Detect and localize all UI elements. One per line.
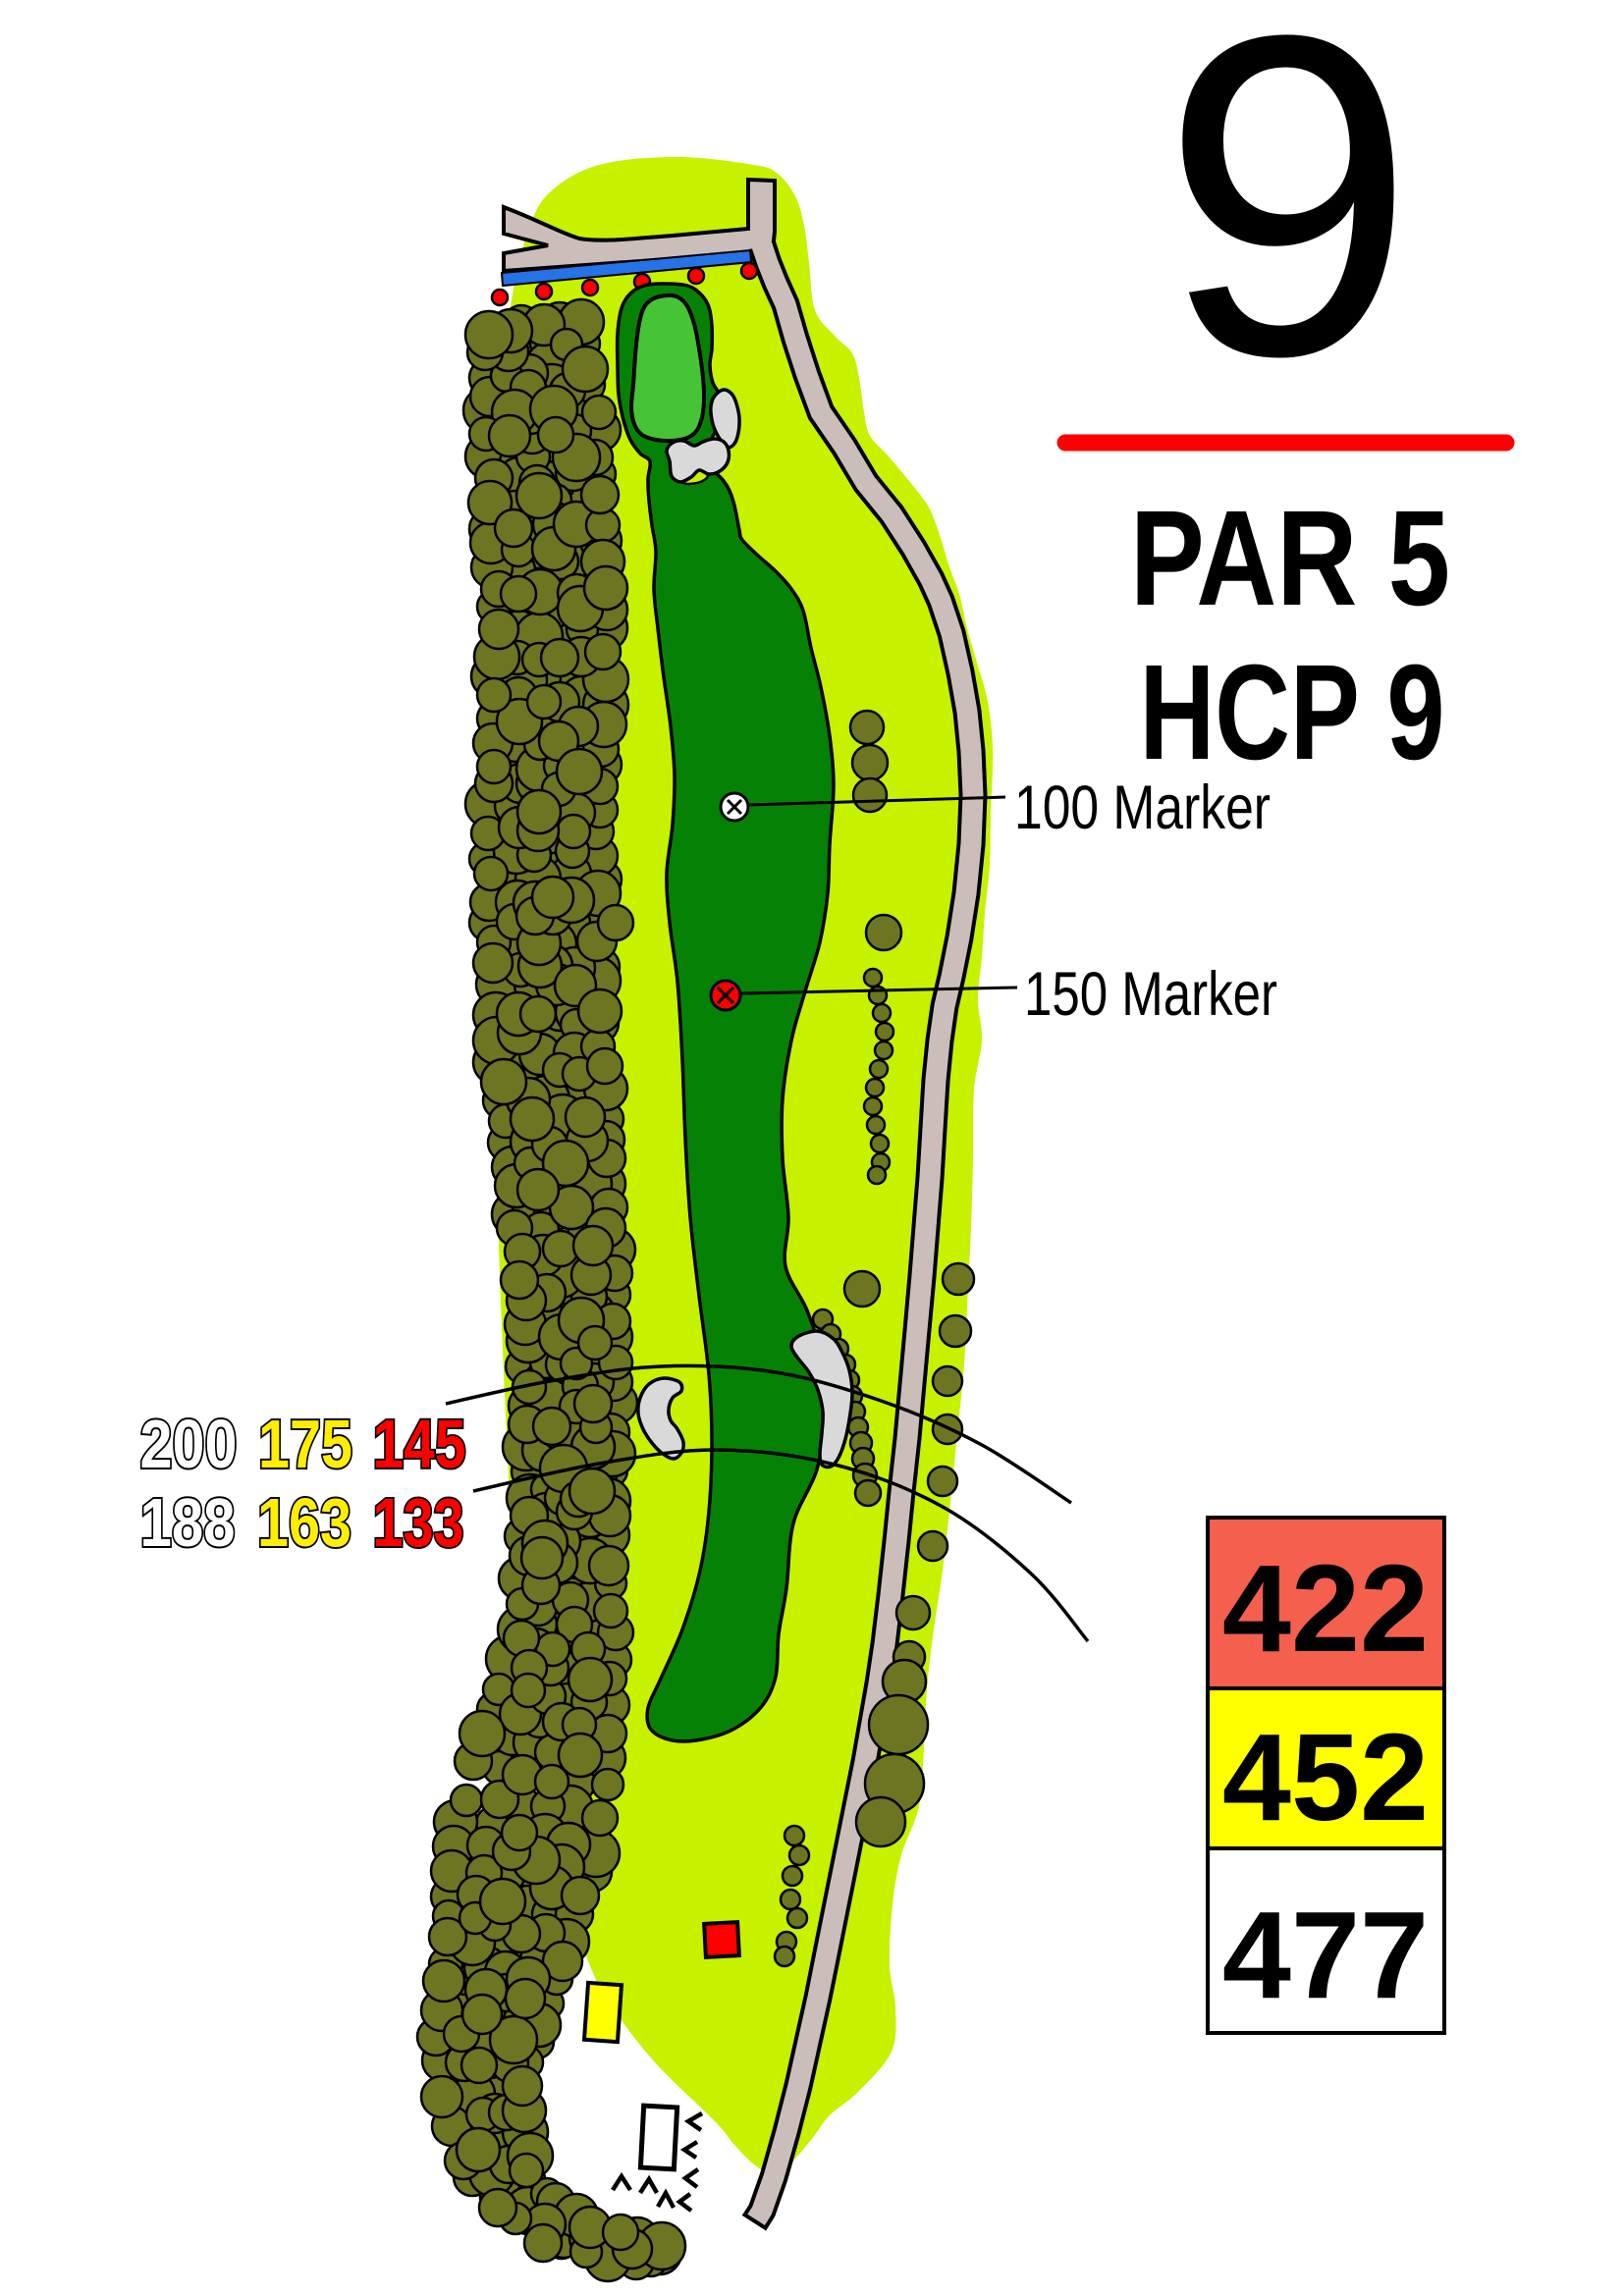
svg-text:163: 163 (257, 1484, 352, 1561)
svg-text:145: 145 (373, 1406, 466, 1482)
svg-text:188: 188 (140, 1484, 236, 1561)
svg-text:133: 133 (373, 1484, 464, 1561)
svg-text:HCP 9: HCP 9 (1140, 637, 1445, 788)
svg-text:9: 9 (1162, 0, 1416, 451)
svg-text:477: 477 (1222, 1886, 1429, 2024)
svg-text:200: 200 (140, 1406, 238, 1482)
svg-text:175: 175 (258, 1406, 352, 1482)
svg-text:150 Marker: 150 Marker (1024, 960, 1277, 1029)
svg-text:PAR 5: PAR 5 (1130, 483, 1450, 634)
svg-text:452: 452 (1222, 1708, 1429, 1846)
svg-text:422: 422 (1222, 1539, 1429, 1678)
